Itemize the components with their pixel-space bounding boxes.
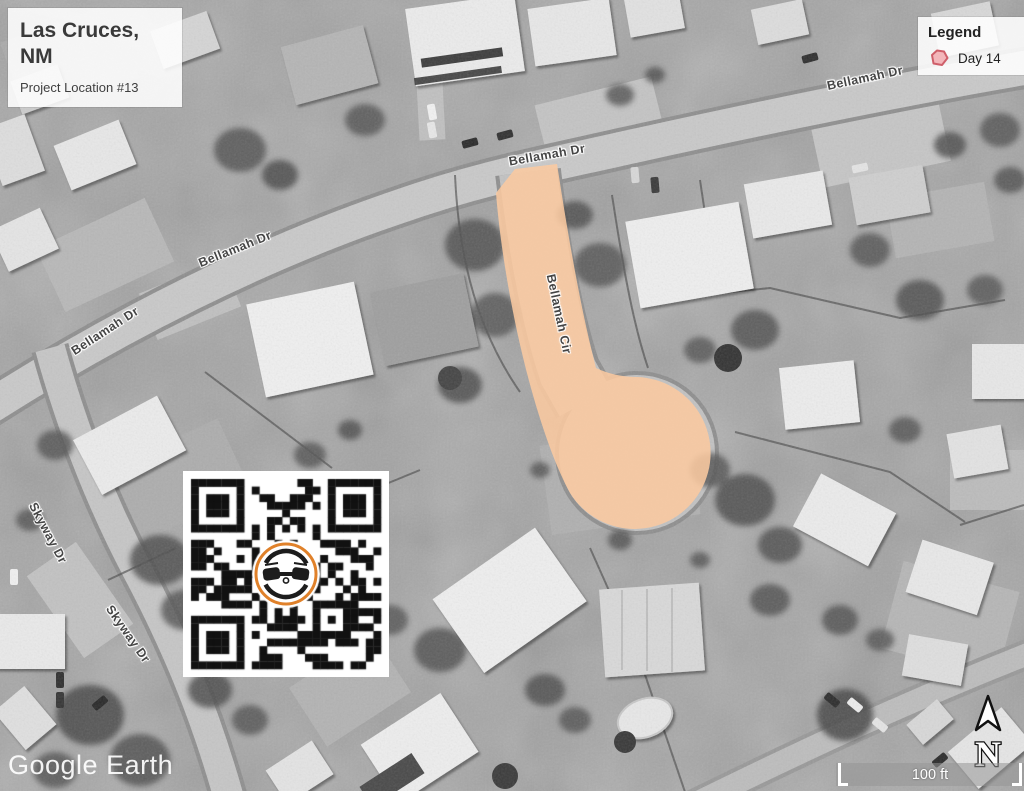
north-arrow: N [964, 694, 1012, 772]
day-area-swatch-icon [928, 49, 950, 67]
title-card: Las Cruces, NM Project Location #13 [8, 8, 182, 107]
legend-item-label: Day 14 [958, 51, 1001, 66]
scale-foot-left [838, 783, 848, 786]
satellite-basemap [0, 0, 1024, 791]
scale-bar: 100 ft [836, 763, 1024, 786]
project-location-subtitle: Project Location #13 [20, 80, 170, 95]
scale-label: 100 ft [912, 767, 948, 783]
city-title-line2: NM [20, 44, 170, 70]
legend: Legend Day 14 [918, 17, 1024, 75]
legend-item: Day 14 [928, 49, 1024, 67]
scale-foot-right [1012, 783, 1022, 786]
drone-icon [251, 539, 321, 609]
legend-title: Legend [928, 24, 1024, 41]
google-earth-watermark: Google Earth [8, 750, 173, 781]
map-screenshot: Bellamah DrBellamah DrBellamah DrBellama… [0, 0, 1024, 791]
city-title-line1: Las Cruces, [20, 18, 170, 44]
